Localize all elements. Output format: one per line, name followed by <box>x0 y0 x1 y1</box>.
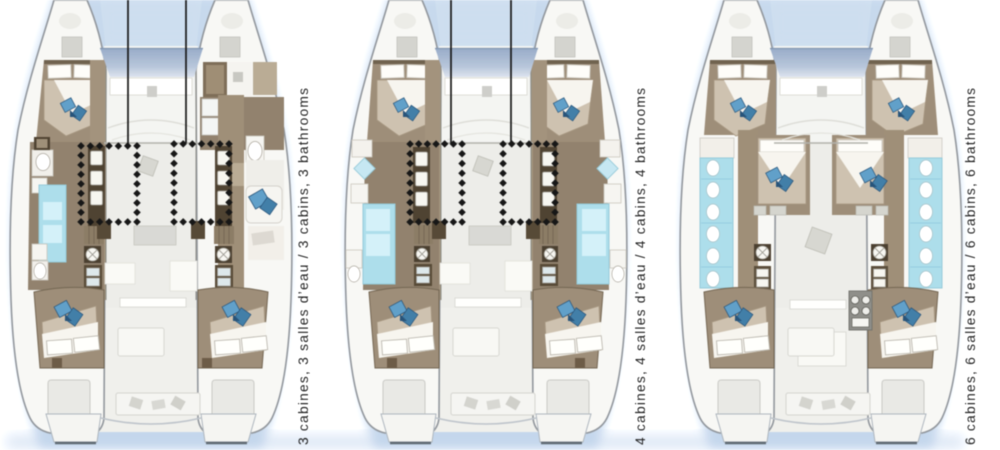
svg-text:6 cabines, 6 salles d’eau / 6: 6 cabines, 6 salles d’eau / 6 cabins, 6 … <box>963 88 978 445</box>
svg-text:3 cabines, 3 salles d’eau / 3: 3 cabines, 3 salles d’eau / 3 cabins, 3 … <box>296 88 311 445</box>
svg-text:4 cabines, 4 salles d’eau / 4: 4 cabines, 4 salles d’eau / 4 cabins, 4 … <box>633 88 648 445</box>
